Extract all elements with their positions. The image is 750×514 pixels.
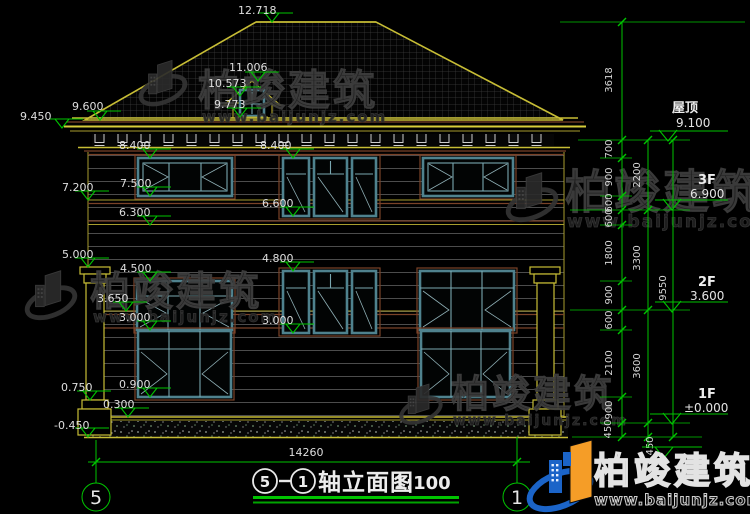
brand-logo: 柏竣建筑 www.baijunjz.com [524, 440, 750, 514]
level-value: ±0.000 [684, 401, 728, 415]
level-label: 1F [698, 387, 716, 402]
window-3f-right [420, 155, 516, 199]
dim-seg: 600 [604, 310, 615, 329]
watermark-brand: 柏竣建筑 [451, 372, 615, 416]
dim-band2-top: 3.650 [97, 292, 129, 305]
dim-1f-sill: 0.900 [119, 378, 151, 391]
logo-brand-text: 柏竣建筑 [594, 451, 750, 492]
dim-seg: 2100 [604, 350, 615, 375]
dim-3f-win-top-l: 8.400 [119, 139, 151, 152]
dim-seg: 900 [604, 400, 615, 419]
logo-url-text: www.baijunjz.com [594, 491, 750, 509]
level-label: 2F [698, 275, 716, 290]
level-label: 3F [698, 173, 716, 188]
logo-building-blue [549, 460, 562, 493]
window-2f-center-trio [279, 268, 380, 336]
dim-dormer-ridge: 11.006 [229, 61, 268, 74]
level-label: 屋顶 [672, 101, 698, 116]
dim-seg: 3300 [632, 245, 643, 270]
level-value: 6.900 [690, 187, 724, 201]
dim-2f-win-top-l: 4.500 [120, 262, 152, 275]
dim-total-height: 9550 [658, 275, 669, 300]
dim-seg: 450 [603, 419, 614, 438]
dim-pilaster-base: 0.750 [61, 381, 93, 394]
window-2f-right [417, 268, 517, 333]
dim-band1-bot: 6.300 [119, 206, 151, 219]
axis-number: 1 [511, 487, 523, 509]
title-underline [253, 496, 459, 499]
dim-dormer-sill: 9.773 [214, 98, 246, 111]
logo-building-orange [570, 440, 592, 503]
dim-2f-sill-c: 3.000 [262, 314, 294, 327]
dim-roof-height: 3618 [604, 67, 615, 92]
dim-3f-win-top-c: 8.400 [260, 139, 292, 152]
dim-plinth: 0.300 [103, 398, 135, 411]
dim-3f-sill-l: 7.500 [120, 177, 152, 190]
dim-ground: -0.450 [54, 419, 89, 432]
title-axis-end: 1 [298, 473, 308, 491]
dim-band1-top: 7.200 [62, 181, 94, 194]
dim-seg: 700 [604, 139, 615, 158]
dim-seg: 2200 [632, 162, 643, 187]
dim-2f-win-top-c: 4.800 [262, 252, 294, 265]
window-3f-center-trio [279, 155, 380, 219]
watermark-url: www.baijunjz.com [567, 212, 750, 232]
right-floor-levels: 屋顶 9.100 3F 6.900 2F 3.600 1F ±0.000 [642, 101, 728, 458]
axis-bubble-left: 5 [82, 483, 110, 511]
watermark-url: www.baijunjz.com [453, 413, 628, 429]
title-axis-start: 5 [260, 473, 270, 491]
cad-elevation-drawing: 柏竣建筑 www.baijunjz.com 柏竣建筑 www.baijunjz.… [0, 0, 750, 514]
dim-eave-top: 9.600 [72, 100, 104, 113]
dim-seg: 900 [604, 167, 615, 186]
dim-seg: 1800 [604, 240, 615, 265]
dim-overall-width: 14260 [289, 446, 324, 459]
title-scale: 1:100 [393, 473, 450, 494]
dim-2f-sill-l: 3.000 [119, 311, 151, 324]
axis-number: 5 [90, 487, 102, 509]
dim-seg: 3600 [632, 353, 643, 378]
level-value: 9.100 [676, 116, 710, 130]
watermark-left: 柏竣建筑 www.baijunjz.com [23, 269, 278, 326]
dim-eave-low: 9.450 [20, 110, 52, 123]
level-value: 3.600 [690, 289, 724, 303]
bottom-dimension: 14260 [88, 437, 530, 483]
dim-pilaster-cap: 5.000 [62, 248, 94, 261]
dim-peak: 12.718 [238, 4, 277, 17]
dim-3f-sill-c: 6.600 [262, 197, 294, 210]
title-underline2 [253, 502, 459, 504]
drawing-title: 5 1 轴立面图 1:100 [253, 469, 459, 504]
dim-seg: 900 [604, 285, 615, 304]
dim-dormer-eave: 10.573 [208, 77, 247, 90]
dim-seg: 600 [604, 208, 615, 227]
